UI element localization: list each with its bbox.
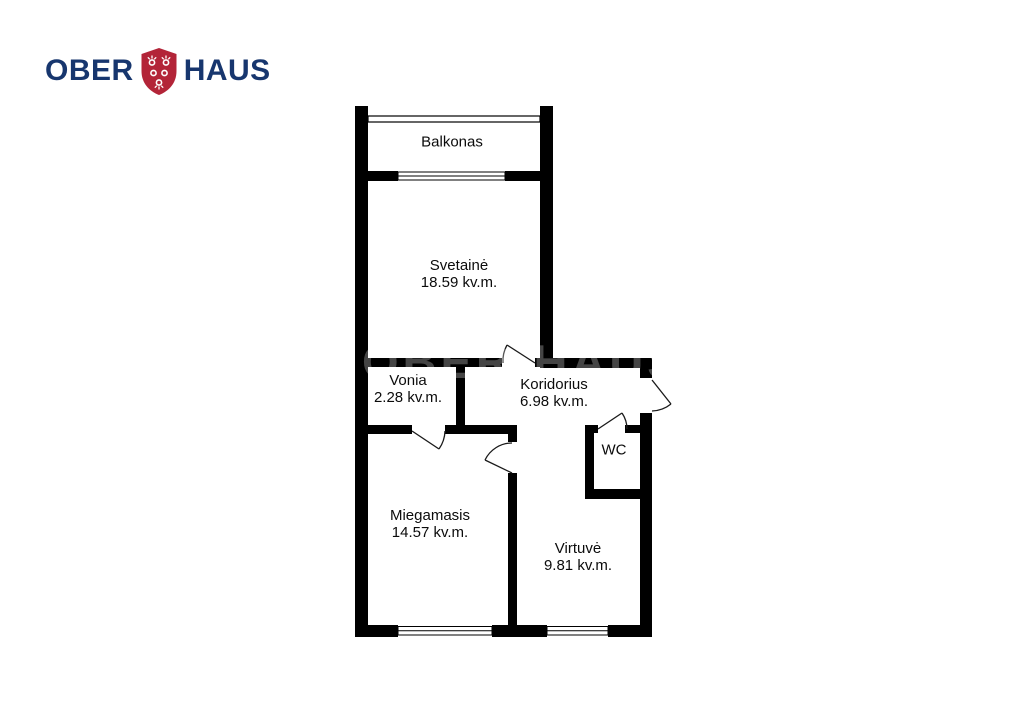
room-label-vonia: Vonia 2.28 kv.m. — [374, 372, 442, 406]
wall-right-top — [640, 358, 652, 378]
door-bedroom — [485, 460, 512, 473]
room-label-wc: WC — [602, 442, 627, 459]
room-name: Svetainė — [421, 257, 497, 274]
wall-corridor-top — [553, 358, 652, 368]
room-name: Virtuvė — [544, 540, 612, 557]
wall-stub — [535, 358, 553, 367]
wall-vonia-top — [368, 358, 502, 367]
wall-bottom-3 — [608, 625, 652, 637]
wall-right-bottom — [640, 413, 652, 637]
room-area: 18.59 kv.m. — [421, 274, 497, 291]
wall-bottom-1 — [355, 625, 398, 637]
wall-bedroom-divider-stub — [508, 433, 517, 442]
door-vonia — [412, 431, 439, 449]
room-name: Balkonas — [421, 134, 483, 151]
room-label-miegamasis: Miegamasis 14.57 kv.m. — [390, 507, 470, 541]
room-area: 9.81 kv.m. — [544, 557, 612, 574]
door-entrance — [652, 380, 671, 404]
room-label-balkonas: Balkonas — [421, 134, 483, 151]
door-wc — [598, 413, 622, 429]
floor-plan — [0, 0, 1024, 724]
balcony-railing — [368, 116, 540, 122]
wall-balcony-right — [505, 171, 553, 181]
wall-bedroom-divider — [508, 473, 517, 625]
room-name: Miegamasis — [390, 507, 470, 524]
wall-left — [355, 106, 368, 637]
room-label-virtuve: Virtuvė 9.81 kv.m. — [544, 540, 612, 574]
wall-vonia-bottom-left — [368, 425, 412, 434]
room-name: Koridorius — [520, 376, 588, 393]
room-name: Vonia — [374, 372, 442, 389]
room-name: WC — [602, 442, 627, 459]
wall-vonia-divider — [456, 367, 465, 430]
wall-livingroom-right — [540, 106, 553, 368]
room-area: 2.28 kv.m. — [374, 389, 442, 406]
room-label-svetaine: Svetainė 18.59 kv.m. — [421, 257, 497, 291]
wall-bottom-2 — [492, 625, 547, 637]
room-area: 14.57 kv.m. — [390, 524, 470, 541]
wall-wc-bottom — [585, 489, 640, 499]
room-area: 6.98 kv.m. — [520, 393, 588, 410]
room-label-koridorius: Koridorius 6.98 kv.m. — [520, 376, 588, 410]
door-livingroom — [507, 345, 535, 363]
wall-balcony-left — [355, 171, 398, 181]
wall-vonia-bottom-right — [445, 425, 517, 434]
wall-wc-top-left — [585, 425, 598, 433]
wall-wc-left — [585, 425, 594, 497]
